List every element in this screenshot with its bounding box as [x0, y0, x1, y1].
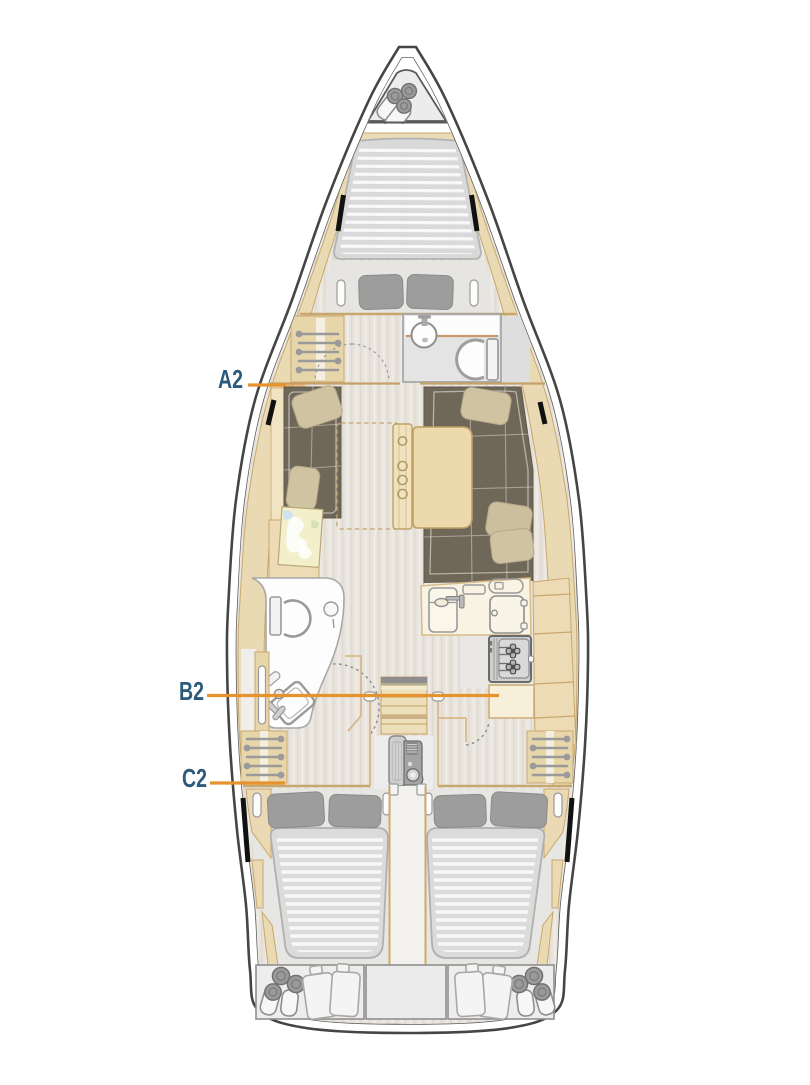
svg-text:A2: A2	[218, 364, 243, 394]
svg-text:C2: C2	[182, 763, 207, 793]
svg-text:B2: B2	[179, 676, 204, 706]
